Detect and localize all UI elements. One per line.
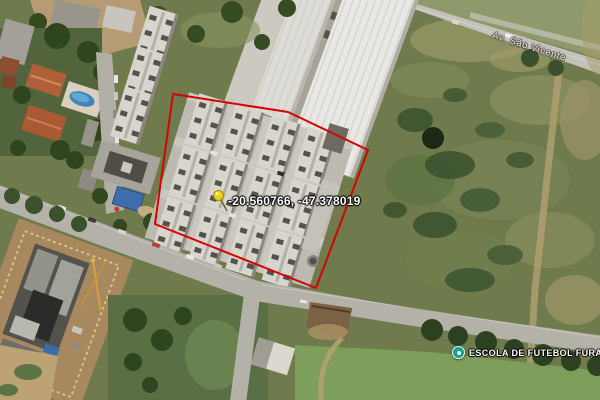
poi-marker[interactable]: ESCOLA DE FUTEBOL FURACÃO <box>452 346 600 359</box>
sports-poi-icon[interactable] <box>452 346 465 359</box>
poi-name-label[interactable]: ESCOLA DE FUTEBOL FURACÃO <box>469 348 600 358</box>
satellite-map-canvas[interactable]: -20.560766, -47.378019 Av. São Vicente E… <box>0 0 600 400</box>
coordinates-label: -20.560766, -47.378019 <box>228 194 361 208</box>
residential-area <box>0 19 113 169</box>
culvert <box>306 302 352 340</box>
